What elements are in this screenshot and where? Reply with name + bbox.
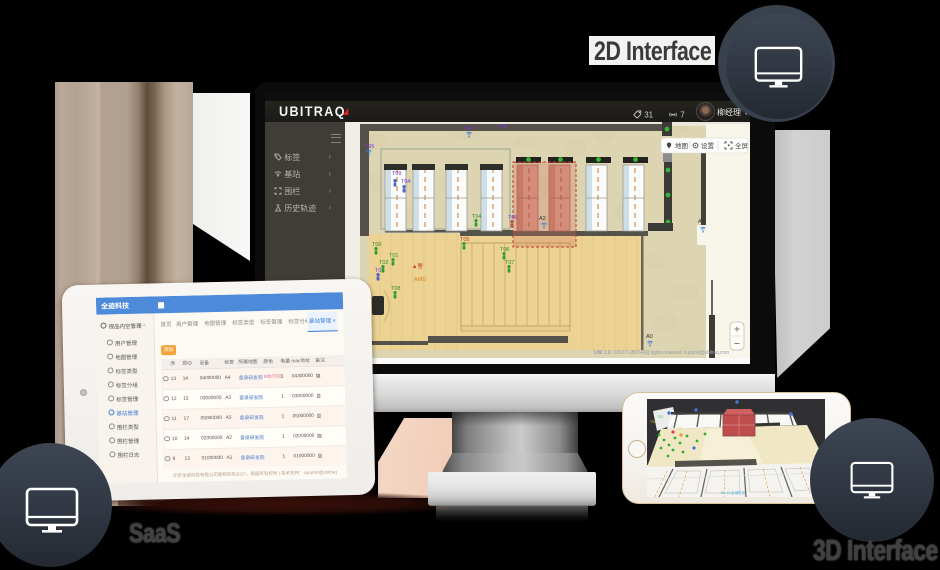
svg-text:T05: T05 bbox=[460, 237, 469, 243]
svg-text:T07: T07 bbox=[505, 260, 514, 266]
svg-text:▲警: ▲警 bbox=[412, 262, 423, 270]
svg-text:©2017 UBITRAQ rights reserved.: ©2017 UBITRAQ rights reserved. support@u… bbox=[613, 349, 729, 356]
svg-text:T04: T04 bbox=[472, 214, 481, 220]
svg-text:T02: T02 bbox=[657, 415, 663, 419]
svg-text:T06: T06 bbox=[508, 215, 517, 221]
svg-text:T01: T01 bbox=[677, 427, 683, 431]
svg-text:T94: T94 bbox=[497, 124, 506, 130]
svg-text:UW 1.0: UW 1.0 bbox=[594, 350, 611, 356]
svg-text:T06: T06 bbox=[500, 247, 509, 253]
svg-text:T06: T06 bbox=[650, 420, 656, 424]
svg-text:T09: T09 bbox=[392, 171, 401, 177]
svg-text:T01: T01 bbox=[389, 253, 398, 259]
svg-text:T08: T08 bbox=[391, 286, 400, 292]
svg-text:全屏: 全屏 bbox=[735, 141, 749, 150]
svg-text:A2: A2 bbox=[539, 216, 546, 222]
svg-text:AMD: AMD bbox=[414, 277, 426, 283]
svg-text:T95: T95 bbox=[365, 144, 374, 150]
svg-text:T02: T02 bbox=[379, 260, 388, 266]
svg-text:A1: A1 bbox=[698, 219, 705, 225]
svg-text:T00: T00 bbox=[372, 242, 381, 248]
svg-text:地图: 地图 bbox=[675, 141, 688, 150]
svg-text:A0: A0 bbox=[646, 334, 653, 340]
svg-text:B1-12 区域检测: B1-12 区域检测 bbox=[721, 490, 746, 495]
svg-text:设置: 设置 bbox=[701, 141, 715, 150]
svg-text:T04: T04 bbox=[401, 179, 410, 185]
svg-text:T93: T93 bbox=[464, 126, 473, 132]
